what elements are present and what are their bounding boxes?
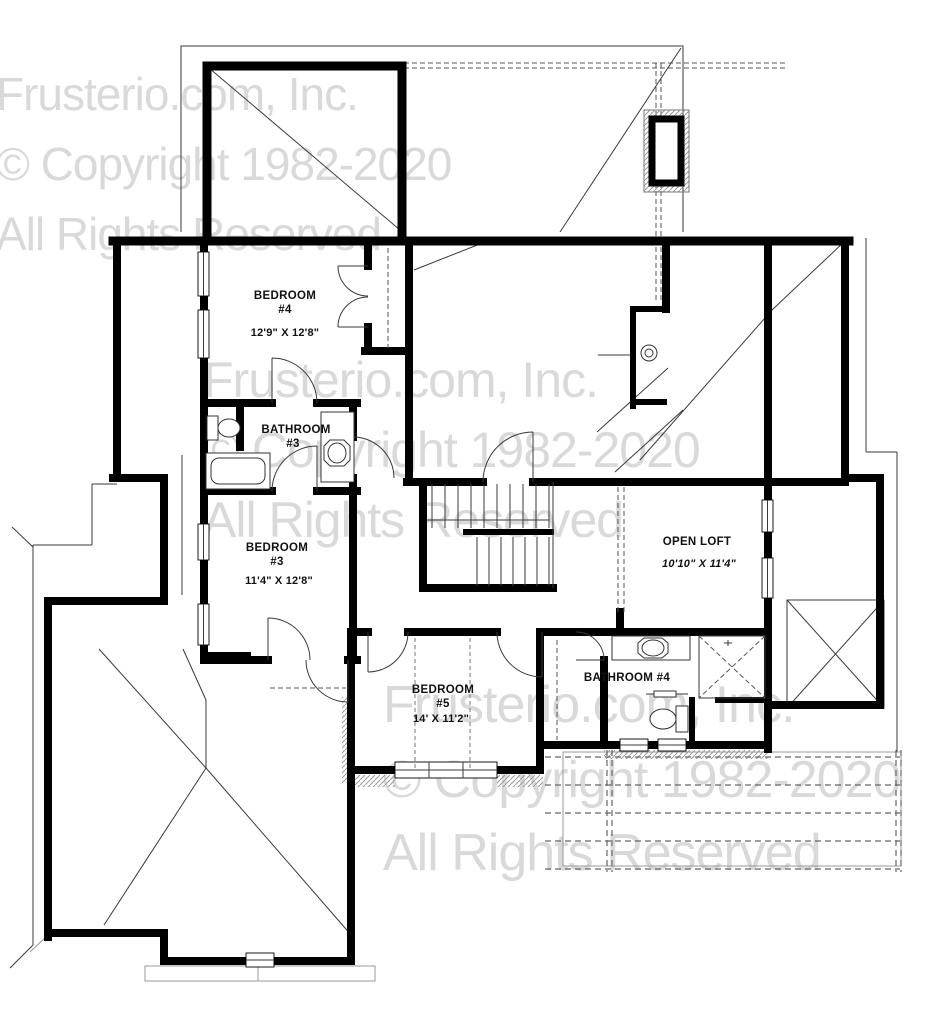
bathroom3-label: BATHROOM <box>261 424 330 436</box>
watermark-middle: Frusterio.com, Inc. © Copyright 1982-202… <box>203 352 700 548</box>
bedroom4-number: #4 <box>278 304 292 316</box>
bedroom4-label: BEDROOM <box>254 290 316 302</box>
dashed-roof-lines <box>404 63 786 303</box>
sink <box>612 636 690 660</box>
watermark-line: © Copyright 1982-2020 <box>383 751 900 809</box>
bedroom4-closet-walls <box>365 241 409 351</box>
bathtub <box>206 453 270 489</box>
bedroom3-dims: 11'4" X 12'8" <box>245 575 313 587</box>
watermark-line: Frusterio.com, Inc. <box>0 68 358 120</box>
bedroom3-label: BEDROOM <box>246 542 308 554</box>
bedroom4-dims: 12'9" X 12'8" <box>251 327 319 339</box>
bathroom3-number: #3 <box>286 438 299 450</box>
bedroom5-number: #5 <box>436 698 450 710</box>
chimney <box>652 119 681 183</box>
watermark-top: Frusterio.com, Inc. © Copyright 1982-202… <box>0 68 451 260</box>
floor-plan-page: Frusterio.com, Inc. © Copyright 1982-202… <box>0 0 932 1024</box>
open-loft-dims: 10'10" X 11'4" <box>662 558 737 570</box>
bedroom5-dims: 14' X 11'2" <box>413 713 469 725</box>
sink <box>321 412 354 482</box>
bedroom3-number: #3 <box>270 556 283 568</box>
watermark-line: All Rights Reserved <box>383 824 821 882</box>
open-loft-label: OPEN LOFT <box>663 536 732 548</box>
floor-plan-drawing: Frusterio.com, Inc. © Copyright 1982-202… <box>0 0 932 1024</box>
watermark-line: © Copyright 1982-2020 <box>0 138 451 190</box>
bedroom5-label: BEDROOM <box>412 684 474 696</box>
flue-vent <box>641 345 657 361</box>
watermark-line: All Rights Reserved <box>0 208 381 260</box>
bathroom4-label: BATHROOM #4 <box>584 672 670 684</box>
watermark-line: All Rights Reserved <box>203 492 623 548</box>
